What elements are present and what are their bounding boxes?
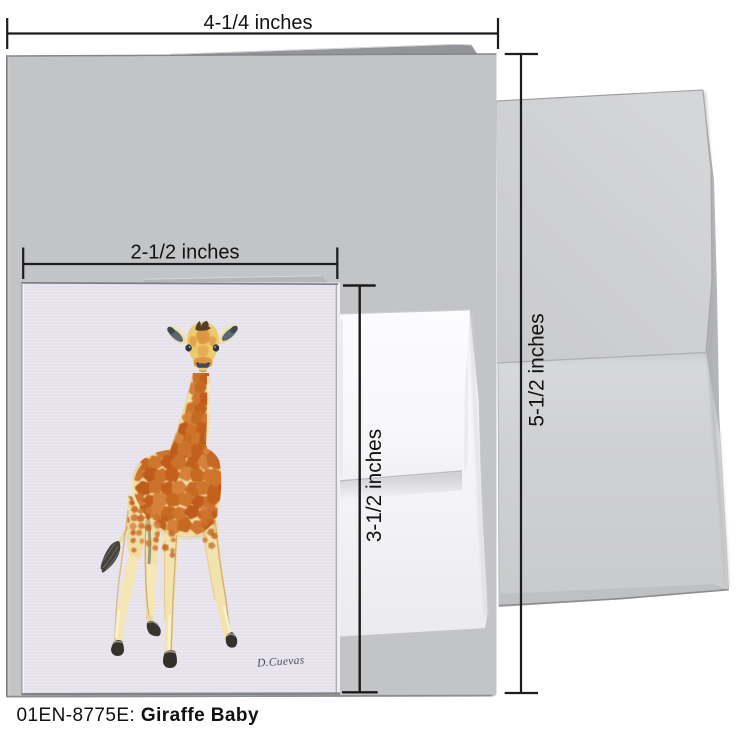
svg-text:4-1/4 inches: 4-1/4 inches: [204, 12, 313, 34]
svg-text:3-1/2 inches: 3-1/2 inches: [363, 429, 386, 542]
svg-text:01EN-8775E: Giraffe Baby: 01EN-8775E: Giraffe Baby: [17, 705, 259, 726]
svg-text:5-1/2 inches: 5-1/2 inches: [526, 313, 549, 426]
svg-text:2-1/2 inches: 2-1/2 inches: [131, 242, 240, 264]
